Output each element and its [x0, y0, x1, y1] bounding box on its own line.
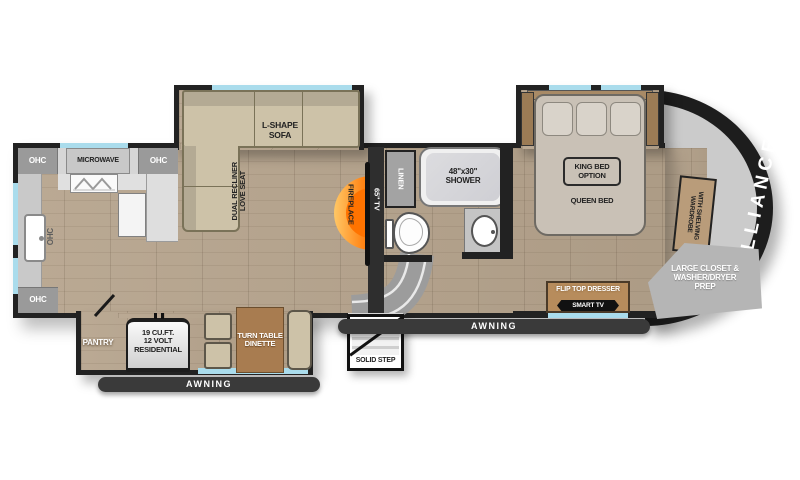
bath-faucet-icon — [491, 230, 495, 234]
bath-bedroom-wall — [500, 147, 513, 259]
refrigerator: 19 CU.FT. 12 VOLT RESIDENTIAL — [126, 318, 190, 372]
wardrobe-with-shelving: WARDROBE WITH SHELVING — [672, 175, 717, 254]
smart-tv: SMART TV — [557, 300, 619, 311]
pantry-door — [95, 295, 114, 316]
awning-right: AWNING — [338, 319, 650, 334]
shower-pan: 48"x30" SHOWER — [426, 153, 500, 201]
nightstand-left — [521, 92, 534, 146]
dinette-label: TURN TABLE DINETTE — [237, 332, 282, 349]
pillow-2 — [576, 102, 607, 136]
king-bed-option-box: KING BED OPTION — [563, 157, 621, 186]
closet-label-line3: PREP — [648, 283, 762, 292]
pillow-3 — [610, 102, 641, 136]
king-label-line2: OPTION — [574, 172, 609, 180]
tv-label: 65" TV — [372, 188, 380, 210]
tv-screen — [365, 162, 370, 266]
fireplace-label: FIREPLACE — [346, 184, 354, 225]
dinette-chair-1 — [204, 313, 232, 340]
shower: 48"x30" SHOWER — [419, 147, 507, 207]
bedroom-bottom-wall-left — [513, 311, 548, 318]
awning-left: AWNING — [98, 377, 320, 392]
dresser-slide-edge — [548, 313, 628, 318]
dresser-label: FLIP TOP DRESSER — [548, 286, 628, 294]
bath-sink — [471, 215, 498, 247]
fridge-label: 19 CU.FT. 12 VOLT RESIDENTIAL — [128, 329, 188, 354]
linen-label: LINEN — [396, 168, 404, 190]
bath-lower-wall-left — [384, 255, 432, 262]
pantry-label: PANTRY — [72, 339, 124, 348]
queen-bed-label: QUEEN BED — [556, 197, 628, 205]
awning-right-label: AWNING — [471, 321, 517, 331]
dinette-label-line2: DINETTE — [237, 340, 282, 348]
dinette-bench — [287, 310, 312, 370]
bath-lower-wall-right — [462, 252, 513, 259]
shower-label: 48"x30" SHOWER — [446, 168, 481, 186]
shower-label-line2: SHOWER — [446, 177, 481, 186]
pillow-1 — [542, 102, 573, 136]
solid-step-label: SOLID STEP — [350, 357, 401, 365]
closet-label: LARGE CLOSET & WASHER/DRYER PREP — [648, 265, 762, 292]
dinette-chair-2 — [204, 342, 232, 369]
nightstand-right — [646, 92, 659, 146]
fridge-handle-icon — [154, 313, 157, 319]
tv-wall — [368, 147, 384, 313]
king-bed-option-label: KING BED OPTION — [574, 163, 609, 180]
smart-tv-label: SMART TV — [572, 302, 604, 309]
linen-closet: LINEN — [385, 150, 416, 208]
fridge-handle-icon — [161, 313, 164, 319]
dinette-table: TURN TABLE DINETTE — [236, 307, 284, 373]
fridge-label-line3: RESIDENTIAL — [128, 346, 188, 354]
toilet-bowl-rim — [399, 218, 423, 246]
awning-left-label: AWNING — [186, 379, 232, 389]
floorplan-canvas: ALLIANCE OHC MICROWAVE OHC — [0, 0, 800, 480]
